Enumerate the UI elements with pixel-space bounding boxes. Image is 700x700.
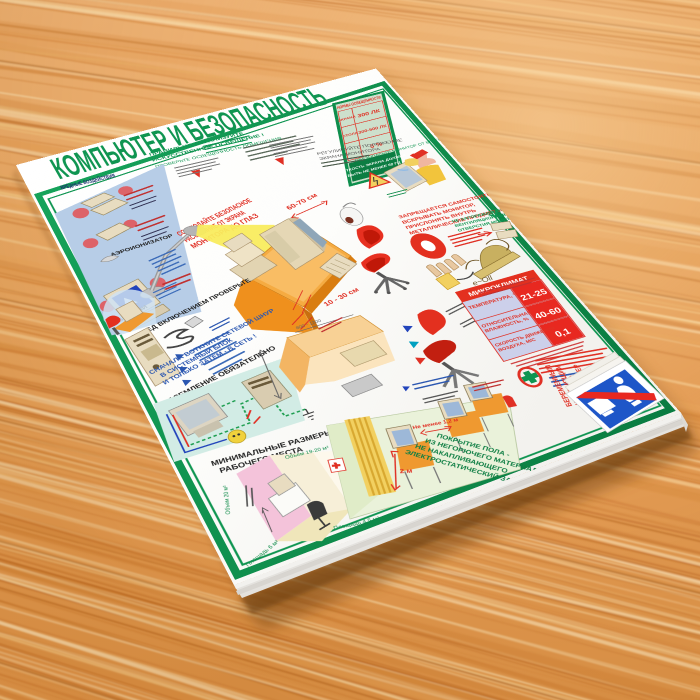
svg-text:2 м: 2 м xyxy=(399,468,413,476)
